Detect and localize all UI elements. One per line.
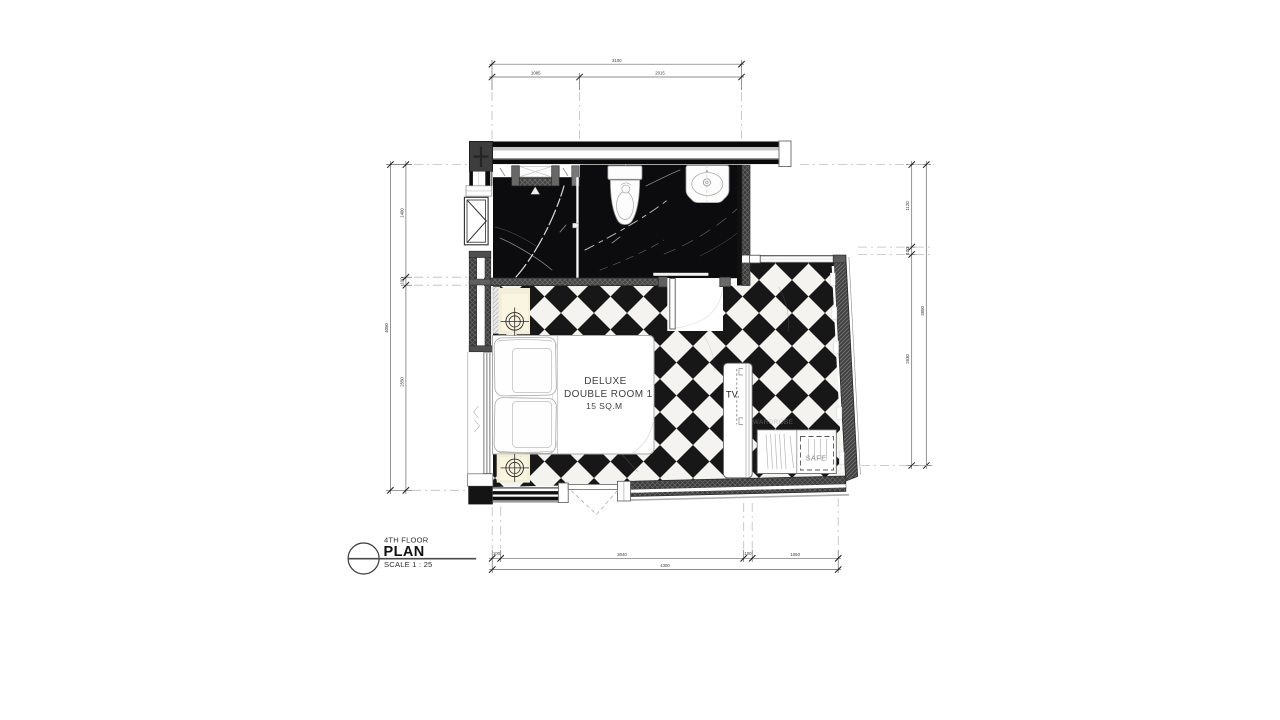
svg-text:3100: 3100 bbox=[612, 58, 622, 63]
svg-text:2550: 2550 bbox=[399, 377, 404, 387]
svg-text:1085: 1085 bbox=[531, 71, 541, 76]
svg-text:2630: 2630 bbox=[905, 354, 910, 364]
svg-text:DELUXE: DELUXE bbox=[584, 376, 626, 387]
svg-text:1120: 1120 bbox=[905, 201, 910, 211]
svg-text:2015: 2015 bbox=[655, 71, 665, 76]
svg-text:DOUBLE ROOM 1: DOUBLE ROOM 1 bbox=[564, 389, 653, 400]
svg-text:100: 100 bbox=[399, 277, 404, 285]
svg-text:3040: 3040 bbox=[617, 552, 627, 557]
svg-text:PLAN: PLAN bbox=[384, 544, 425, 560]
svg-text:100: 100 bbox=[905, 247, 910, 255]
svg-text:100: 100 bbox=[493, 551, 501, 556]
svg-text:100: 100 bbox=[744, 551, 752, 556]
svg-text:4300: 4300 bbox=[660, 563, 670, 568]
svg-text:15 SQ.M: 15 SQ.M bbox=[586, 401, 622, 411]
svg-text:1060: 1060 bbox=[790, 552, 800, 557]
svg-text:3850: 3850 bbox=[920, 306, 925, 316]
svg-text:1400: 1400 bbox=[399, 208, 404, 218]
svg-text:4050: 4050 bbox=[384, 323, 389, 333]
svg-text:SCALE 1 : 25: SCALE 1 : 25 bbox=[384, 560, 432, 569]
svg-text:WARDROBE: WARDROBE bbox=[753, 419, 794, 426]
svg-text:TV.: TV. bbox=[726, 390, 740, 400]
svg-text:SAFE: SAFE bbox=[806, 454, 827, 463]
